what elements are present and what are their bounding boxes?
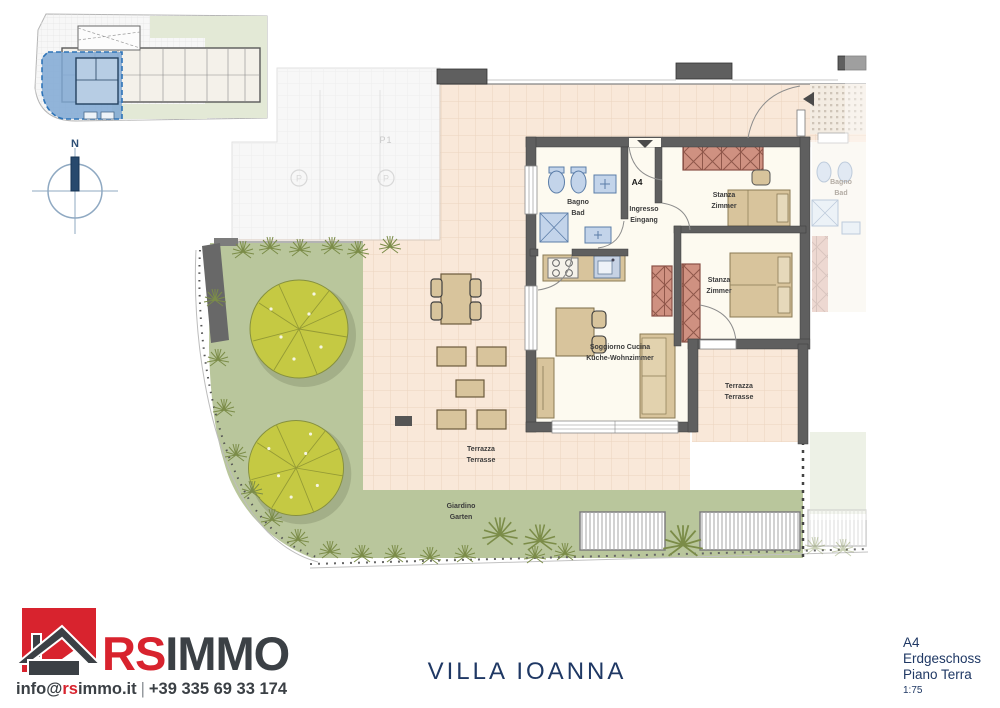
brand-name-immo: IMMO (165, 627, 289, 680)
north-bar-icon (71, 157, 79, 191)
single-bed (728, 190, 790, 226)
contact-separator: | (137, 680, 149, 698)
side-table (456, 380, 484, 397)
room-label-living: Soggiorno Cucina Küche-Wohnzimmer (586, 343, 654, 365)
wardrobe (683, 146, 763, 170)
contact-line: info@rsimmo.it|+39 335 69 33 174 (16, 680, 287, 699)
room-label-line: Zimmer (706, 287, 731, 298)
plan-info-floor-de: Erdgeschoss (903, 651, 981, 667)
north-wall (437, 56, 866, 84)
lounger (477, 347, 506, 366)
company-logo: RSIMMO info@rsimmo.it|+39 335 69 33 174 (14, 604, 314, 704)
plan-info-scale: 1:75 (903, 683, 981, 699)
room-label-line: Eingang (629, 216, 658, 227)
cooktop (548, 258, 578, 278)
phone-number: +39 335 69 33 174 (149, 680, 287, 698)
room-label-line: Terrasse (725, 393, 754, 404)
toilet (549, 171, 565, 193)
garden-light (395, 416, 412, 426)
lounger (437, 347, 466, 366)
north-label: N (71, 138, 79, 150)
kitchen-sink (594, 256, 620, 278)
room-label-bedroom1: Stanza Zimmer (711, 191, 736, 213)
email-rs: rs (62, 680, 78, 698)
room-label-line: Zimmer (711, 202, 736, 213)
north-compass (32, 148, 118, 234)
shower (540, 213, 568, 242)
room-label-adjacent-bathroom: Bagno Bad (830, 178, 852, 200)
lounger (437, 410, 466, 429)
room-label-terrace-left: Terrazza Terrasse (467, 445, 496, 467)
pillar (676, 63, 732, 79)
room-label-line: Ingresso (629, 205, 658, 216)
desk-chair (752, 170, 770, 185)
svg-text:P: P (383, 174, 389, 184)
room-label-terrace-right: Terrazza Terrasse (725, 382, 754, 404)
room-label-line: Bagno (567, 198, 589, 209)
plan-info-unit: A4 (903, 635, 981, 651)
room-label-entrance: Ingresso Eingang (629, 205, 658, 227)
double-bed (730, 253, 792, 317)
brand-name: RSIMMO (102, 626, 289, 681)
room-label-line: Stanza (706, 276, 731, 287)
email-prefix: info@ (16, 680, 62, 698)
room-label-line: Giardino (447, 502, 476, 513)
site-plan-thumbnail (35, 14, 267, 121)
wardrobe (652, 266, 672, 316)
room-label-line: Bagno (830, 178, 852, 189)
house-logo-icon (14, 604, 104, 684)
svg-text:P: P (296, 174, 302, 184)
room-label-bathroom: Bagno Bad (567, 198, 589, 220)
email-suffix: immo.it (78, 680, 137, 698)
room-label-line: Bad (567, 209, 589, 220)
project-title: VILLA IOANNA (428, 658, 627, 686)
room-label-garden: Giardino Garten (447, 502, 476, 524)
lounger (477, 410, 506, 429)
outdoor-table (441, 274, 471, 324)
parking-label: P1 (379, 134, 392, 148)
room-label-bedroom2: Stanza Zimmer (706, 276, 731, 298)
floor-plan-sheet: P P (0, 0, 1000, 708)
room-label-line: Garten (447, 513, 476, 524)
room-label-line: Stanza (711, 191, 736, 202)
brand-name-rs: RS (102, 627, 165, 680)
sideboard (537, 358, 554, 418)
room-label-line: Terrazza (725, 382, 754, 393)
bidet (571, 171, 586, 193)
room-label-line: Bad (830, 189, 852, 200)
wardrobe (682, 264, 700, 342)
plan-info-block: A4 Erdgeschoss Piano Terra 1:75 (903, 635, 981, 699)
plan-drawing: P P (0, 0, 1000, 708)
room-label-line: Terrasse (467, 456, 496, 467)
pillar (437, 69, 487, 84)
room-label-line: Terrazza (467, 445, 496, 456)
room-label-line: Küche-Wohnzimmer (586, 354, 654, 365)
room-label-line: Soggiorno Cucina (586, 343, 654, 354)
plan-info-floor-it: Piano Terra (903, 667, 981, 683)
unit-label: A4 (632, 176, 643, 189)
